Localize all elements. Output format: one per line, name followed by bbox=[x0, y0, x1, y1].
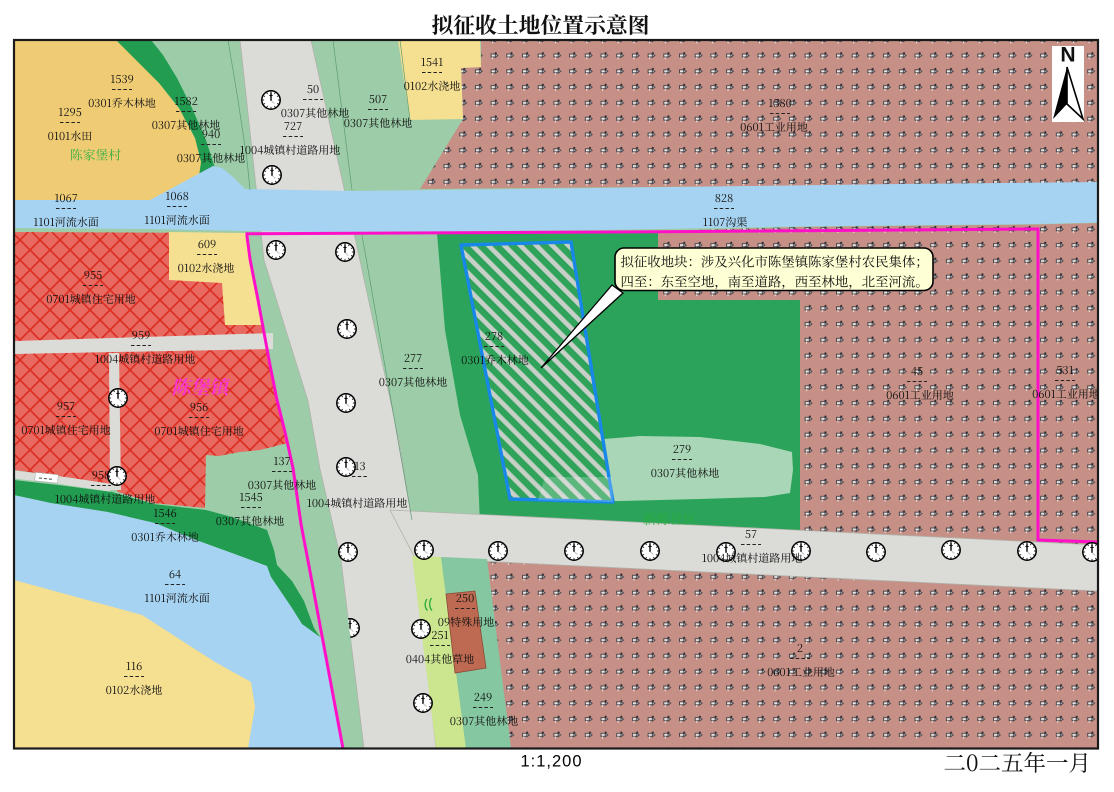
svg-text:1:1,200: 1:1,200 bbox=[520, 753, 582, 771]
